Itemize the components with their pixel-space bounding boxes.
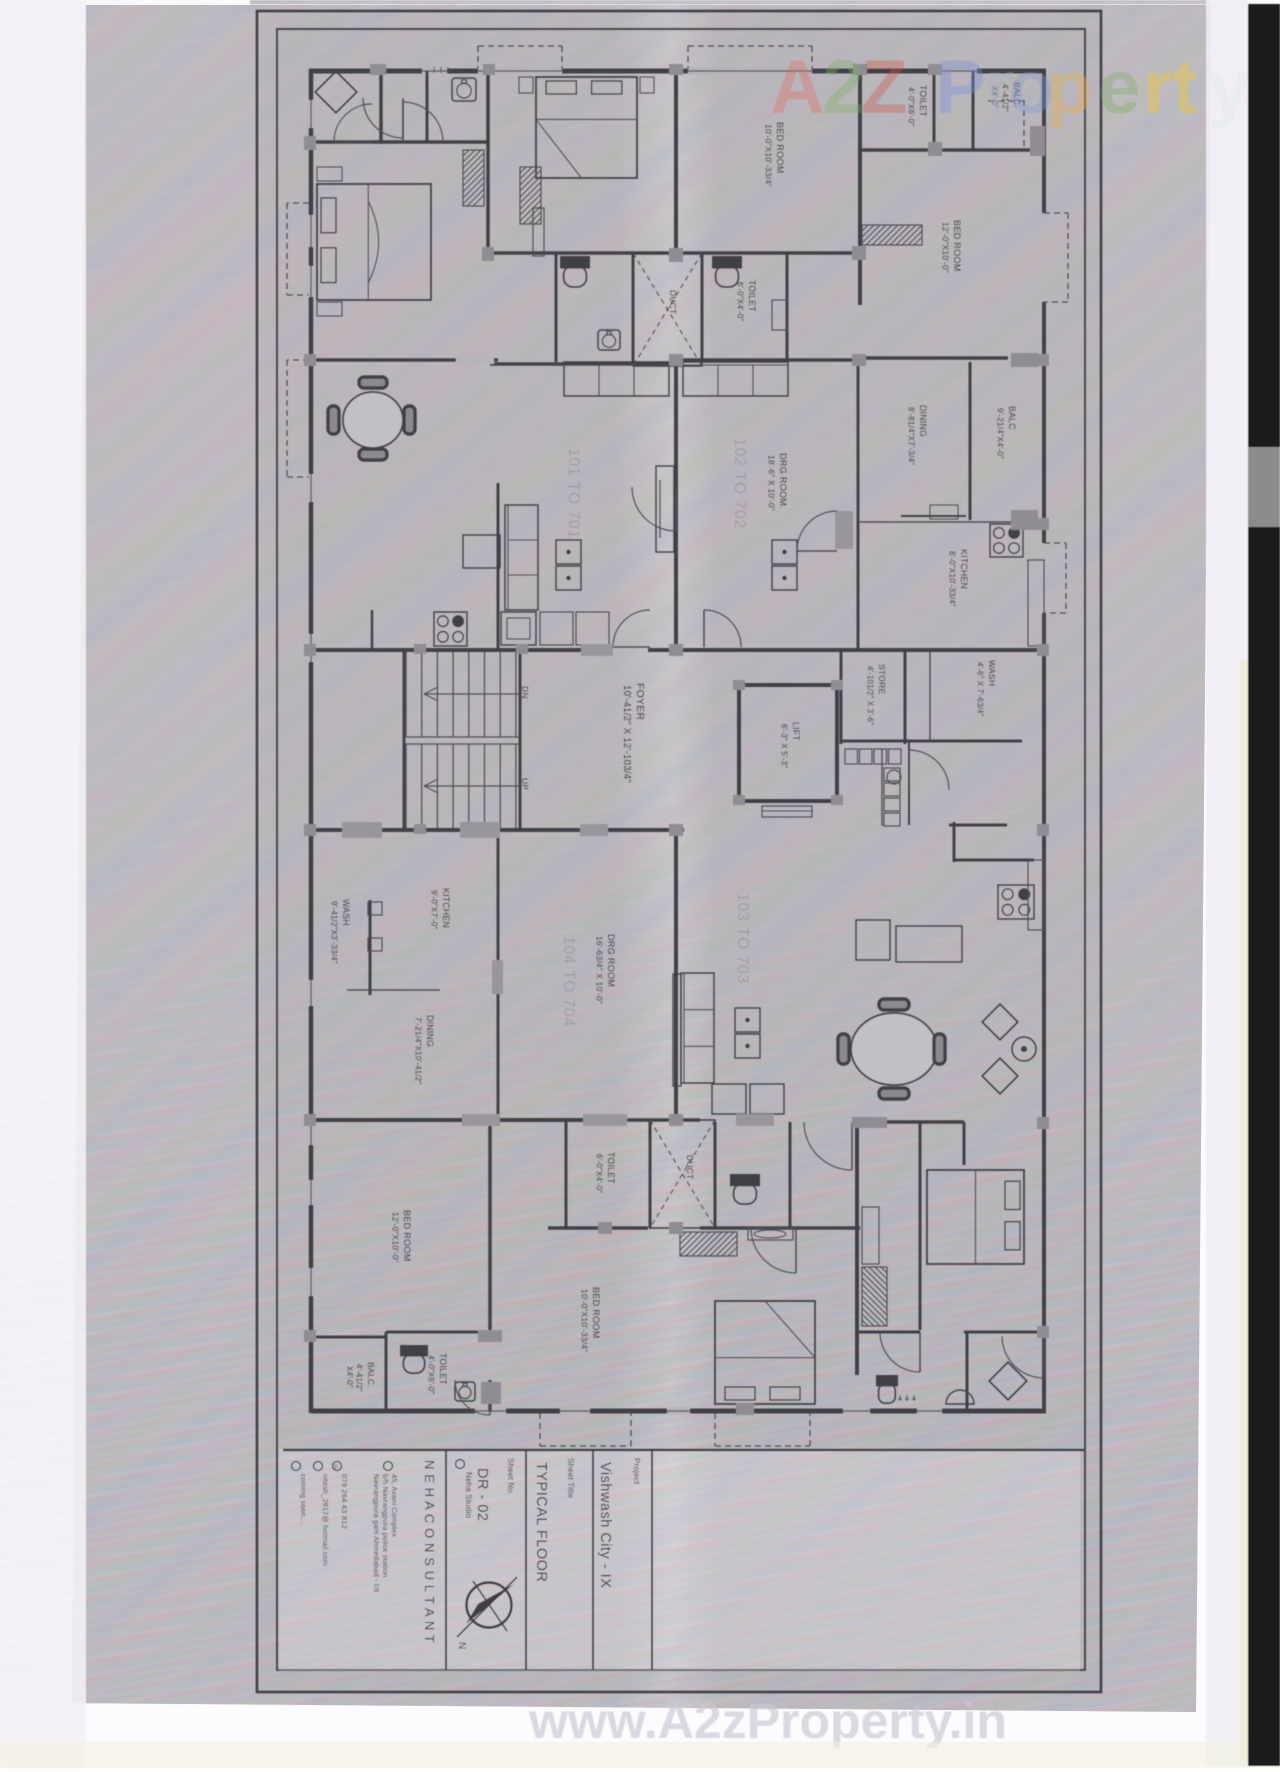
svg-text:101 TO 701: 101 TO 701	[565, 448, 582, 539]
svg-text:DUCT: DUCT	[685, 1155, 695, 1179]
svg-text:KITCHEN: KITCHEN	[959, 549, 969, 589]
svg-text:nitesh_2817@ hotmail.com: nitesh_2817@ hotmail.com	[321, 1474, 330, 1566]
svg-text:TOILET: TOILET	[438, 1353, 448, 1385]
svg-text:Z: Z	[861, 45, 907, 130]
svg-text:P: P	[935, 45, 986, 130]
svg-text:BALC: BALC	[1007, 406, 1017, 430]
svg-text:www.A2zProperty.in: www.A2zProperty.in	[528, 1693, 1007, 1749]
svg-text:7'-21/4"X10'-41/2": 7'-21/4"X10'-41/2"	[414, 1017, 423, 1085]
svg-text:N: N	[456, 1642, 467, 1649]
svg-text:A: A	[770, 45, 825, 130]
svg-text:KITCHEN: KITCHEN	[441, 888, 451, 928]
svg-text:DN: DN	[520, 686, 530, 699]
svg-text:Neha Studio: Neha Studio	[464, 1472, 473, 1519]
svg-text:6'-3" X 5'-3": 6'-3" X 5'-3"	[780, 724, 789, 768]
svg-text:r: r	[1143, 45, 1173, 130]
svg-text:4'-41/2": 4'-41/2"	[355, 1364, 364, 1392]
svg-text:4'-0"X6'-0": 4'-0"X6'-0"	[907, 87, 916, 126]
svg-text:Vishwash City - IX: Vishwash City - IX	[597, 1462, 613, 1588]
svg-text:BED ROOM: BED ROOM	[591, 1287, 601, 1339]
svg-text:WASH: WASH	[987, 660, 997, 686]
svg-text:8'-81/4"X7'-3/4": 8'-81/4"X7'-3/4"	[907, 407, 916, 465]
svg-text:2: 2	[822, 45, 864, 130]
svg-text:UP: UP	[520, 778, 530, 790]
svg-text:DRG ROOM.: DRG ROOM.	[778, 453, 788, 509]
svg-text:DRG ROOM: DRG ROOM	[606, 934, 616, 987]
svg-text:coming soon....: coming soon....	[299, 1474, 308, 1526]
svg-text:4'-101/2" X 3'-6": 4'-101/2" X 3'-6"	[866, 666, 875, 725]
svg-text:DR - 02: DR - 02	[474, 1468, 490, 1521]
svg-text:N E H A C O N S U L T A N T: N E H A C O N S U L T A N T	[422, 1460, 437, 1643]
svg-text:Sheet Title: Sheet Title	[566, 1458, 575, 1498]
svg-text:16'-63/4" X 10'-0": 16'-63/4" X 10'-0"	[595, 936, 605, 1004]
svg-text:P: P	[334, 1465, 338, 1471]
svg-text:BED ROOM: BED ROOM	[402, 1210, 412, 1262]
svg-text:45, Avani Complex: 45, Avani Complex	[390, 1474, 399, 1537]
svg-text:X4'-0": X4'-0"	[345, 1366, 354, 1388]
svg-text:Sheet No.: Sheet No.	[506, 1458, 515, 1495]
svg-text:18'-6" X 10'-0": 18'-6" X 10'-0"	[767, 455, 777, 511]
svg-text:b/h Navrangpura police station: b/h Navrangpura police station	[381, 1474, 390, 1578]
svg-text:103 TO 703: 103 TO 703	[734, 893, 751, 984]
svg-text:102 TO 702: 102 TO 702	[731, 438, 748, 529]
svg-text:12'-0"X10'-0": 12'-0"X10'-0"	[391, 1212, 401, 1263]
svg-text:DINING: DINING	[918, 405, 928, 437]
svg-text:079 264 43 812: 079 264 43 812	[340, 1474, 349, 1529]
svg-text:TOILET: TOILET	[606, 1152, 616, 1184]
svg-text:Navrangpura gam Ahmedabad -: Navrangpura gam Ahmedabad - 09	[372, 1474, 381, 1592]
svg-text:DUCT: DUCT	[668, 290, 678, 314]
svg-text:STORE: STORE	[877, 664, 887, 695]
svg-text:9'-41/2"X3'-33/4": 9'-41/2"X3'-33/4"	[330, 901, 339, 964]
svg-text:4'-0"X6'-0": 4'-0"X6'-0"	[427, 1355, 436, 1394]
svg-text:10'-41/2" X 12'-103/4": 10'-41/2" X 12'-103/4"	[621, 685, 632, 783]
svg-text:4'-6" X 7'-63/4": 4'-6" X 7'-63/4"	[976, 662, 985, 717]
svg-text:12'-0"X10'-0": 12'-0"X10'-0"	[941, 222, 951, 273]
svg-text:TOILET: TOILET	[747, 280, 757, 312]
svg-text:LIFT: LIFT	[791, 722, 801, 741]
svg-text:9'-0"X7'-0": 9'-0"X7'-0"	[430, 890, 439, 929]
svg-text:Project: Project	[632, 1458, 641, 1485]
svg-text:TOILET: TOILET	[918, 85, 928, 117]
svg-text:DINING: DINING	[425, 1015, 435, 1047]
svg-text:WASH: WASH	[341, 899, 351, 926]
svg-text:6'-0"X4'-0": 6'-0"X4'-0"	[736, 282, 745, 321]
svg-text:BALC.: BALC.	[366, 1362, 376, 1388]
svg-text:10'-0"X10'-33/4": 10'-0"X10'-33/4"	[580, 1289, 590, 1352]
svg-text:e: e	[1098, 45, 1140, 130]
svg-text:8'-0"X10'-33/4": 8'-0"X10'-33/4"	[948, 551, 957, 607]
svg-text:FOYER: FOYER	[634, 683, 646, 720]
svg-text:104 TO 704: 104 TO 704	[560, 936, 577, 1027]
svg-text:TYPICAL FLOOR: TYPICAL FLOOR	[533, 1462, 549, 1582]
svg-text:BED ROOM: BED ROOM	[952, 220, 962, 272]
svg-text:p: p	[1046, 45, 1092, 130]
svg-text:t: t	[1172, 45, 1197, 130]
svg-text:9'-21/4"X4'-0": 9'-21/4"X4'-0"	[996, 408, 1005, 459]
svg-text:6'-0"X4'-0": 6'-0"X4'-0"	[595, 1154, 604, 1193]
svg-text:10'-0"X10'-33/4": 10'-0"X10'-33/4"	[764, 124, 774, 187]
